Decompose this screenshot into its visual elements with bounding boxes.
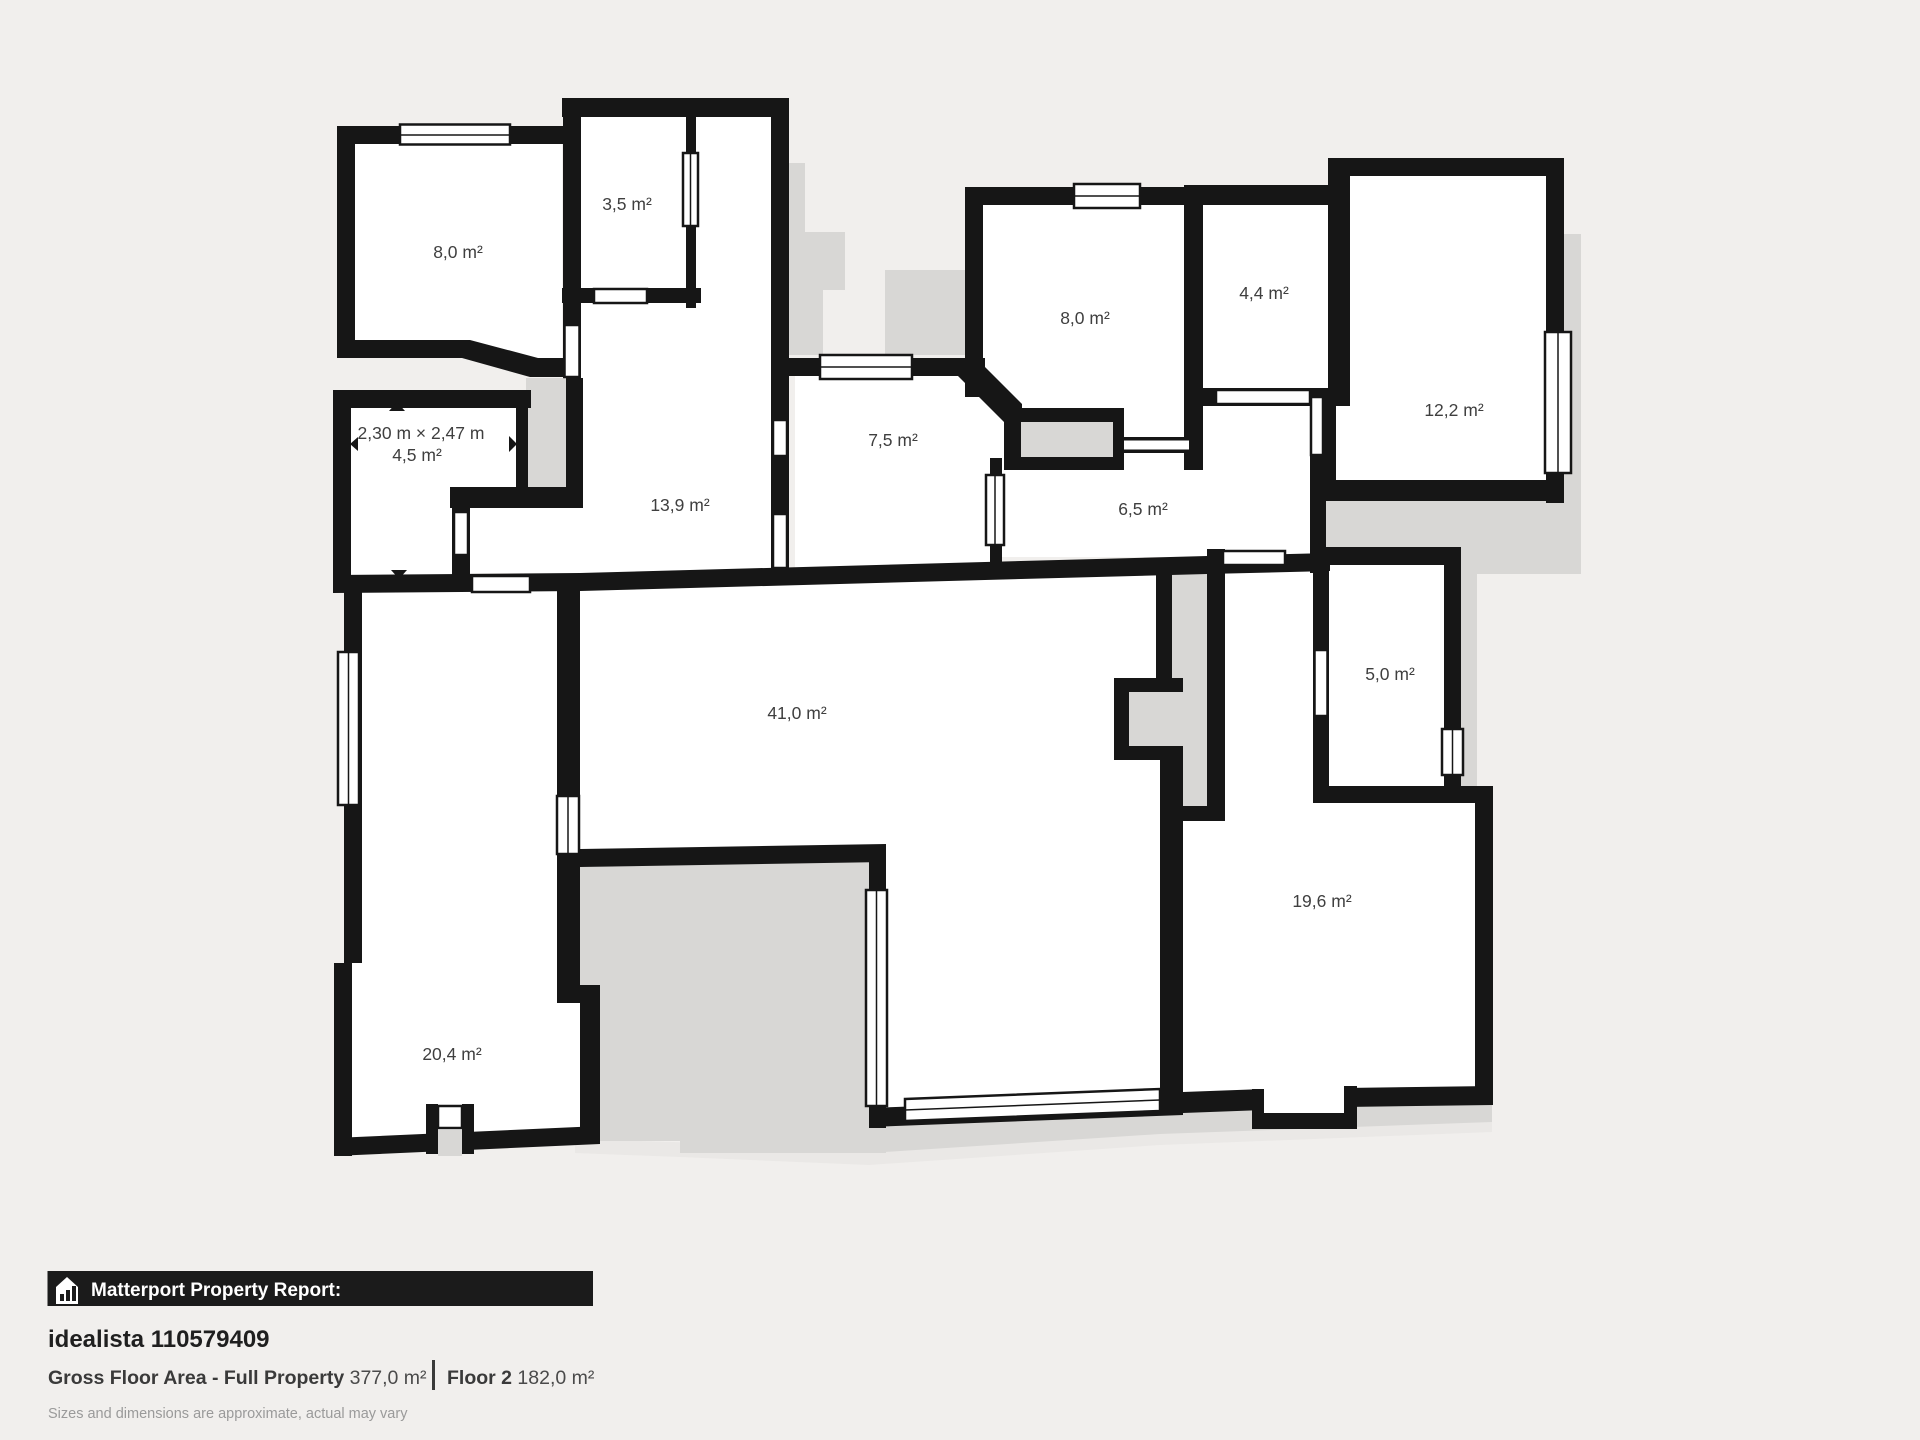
svg-text:Floor 2 182,0 m²: Floor 2 182,0 m² <box>447 1367 595 1389</box>
svg-text:5,0 m²: 5,0 m² <box>1365 664 1415 684</box>
svg-text:41,0 m²: 41,0 m² <box>767 703 826 723</box>
svg-text:Sizes and dimensions are appro: Sizes and dimensions are approximate, ac… <box>48 1406 408 1422</box>
svg-text:19,6 m²: 19,6 m² <box>1292 891 1351 911</box>
svg-text:8,0 m²: 8,0 m² <box>1060 308 1110 328</box>
svg-text:Gross Floor Area - Full Proper: Gross Floor Area - Full Property 377,0 m… <box>48 1367 427 1389</box>
svg-text:13,9 m²: 13,9 m² <box>650 495 709 515</box>
svg-text:20,4 m²: 20,4 m² <box>422 1044 481 1064</box>
svg-text:2,30 m × 2,47 m: 2,30 m × 2,47 m <box>358 423 485 443</box>
svg-text:4,5 m²: 4,5 m² <box>392 445 442 465</box>
svg-text:7,5 m²: 7,5 m² <box>868 430 918 450</box>
svg-text:4,4 m²: 4,4 m² <box>1239 283 1289 303</box>
svg-text:3,5 m²: 3,5 m² <box>602 194 652 214</box>
svg-text:Matterport Property Report:: Matterport Property Report: <box>91 1280 341 1301</box>
svg-text:6,5 m²: 6,5 m² <box>1118 499 1168 519</box>
svg-text:8,0 m²: 8,0 m² <box>433 242 483 262</box>
svg-text:idealista 110579409: idealista 110579409 <box>48 1326 270 1353</box>
svg-text:12,2 m²: 12,2 m² <box>1424 400 1483 420</box>
